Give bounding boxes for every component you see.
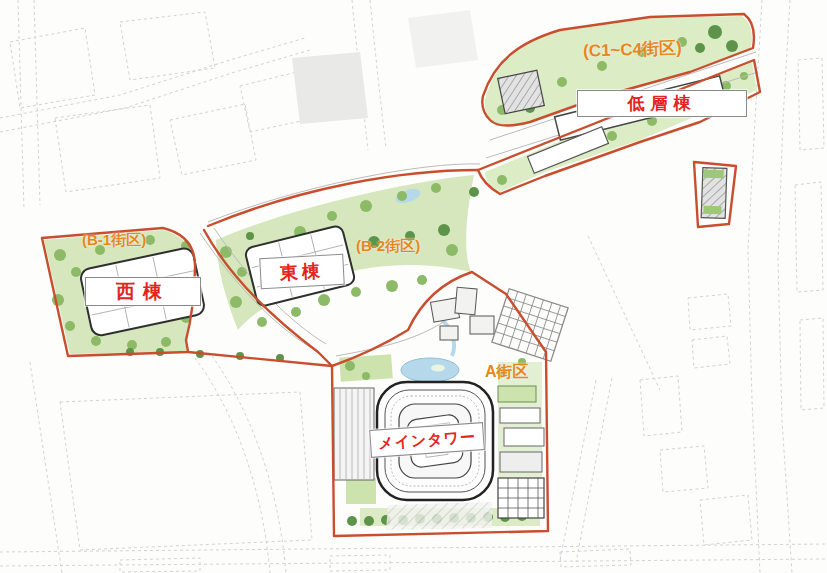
district-label-b2: (B-2街区) <box>356 237 420 256</box>
building-label-east-wing: 東棟 <box>259 254 345 289</box>
c1-hatched-building <box>498 70 545 114</box>
district-label-b1: (B-1街区) <box>82 231 146 250</box>
boundary-south-line <box>188 352 332 366</box>
site-plan-map: (C1~C4街区) (B-1街区) (B-2街区) A街区 低層棟 西棟 東棟 … <box>0 0 827 573</box>
building-label-low-rise: 低層棟 <box>577 90 747 117</box>
district-label-a: A街区 <box>485 362 529 383</box>
plaza-hatching <box>386 502 492 530</box>
building-label-west-wing: 西棟 <box>85 277 201 306</box>
background-buildings <box>292 10 478 124</box>
district-label-c1-c4: (C1~C4街区) <box>583 36 682 62</box>
striped-podium-building <box>334 388 374 480</box>
east-parcel-building <box>701 168 727 219</box>
lattice-structure <box>492 289 568 361</box>
garden-pavilions <box>430 287 494 340</box>
